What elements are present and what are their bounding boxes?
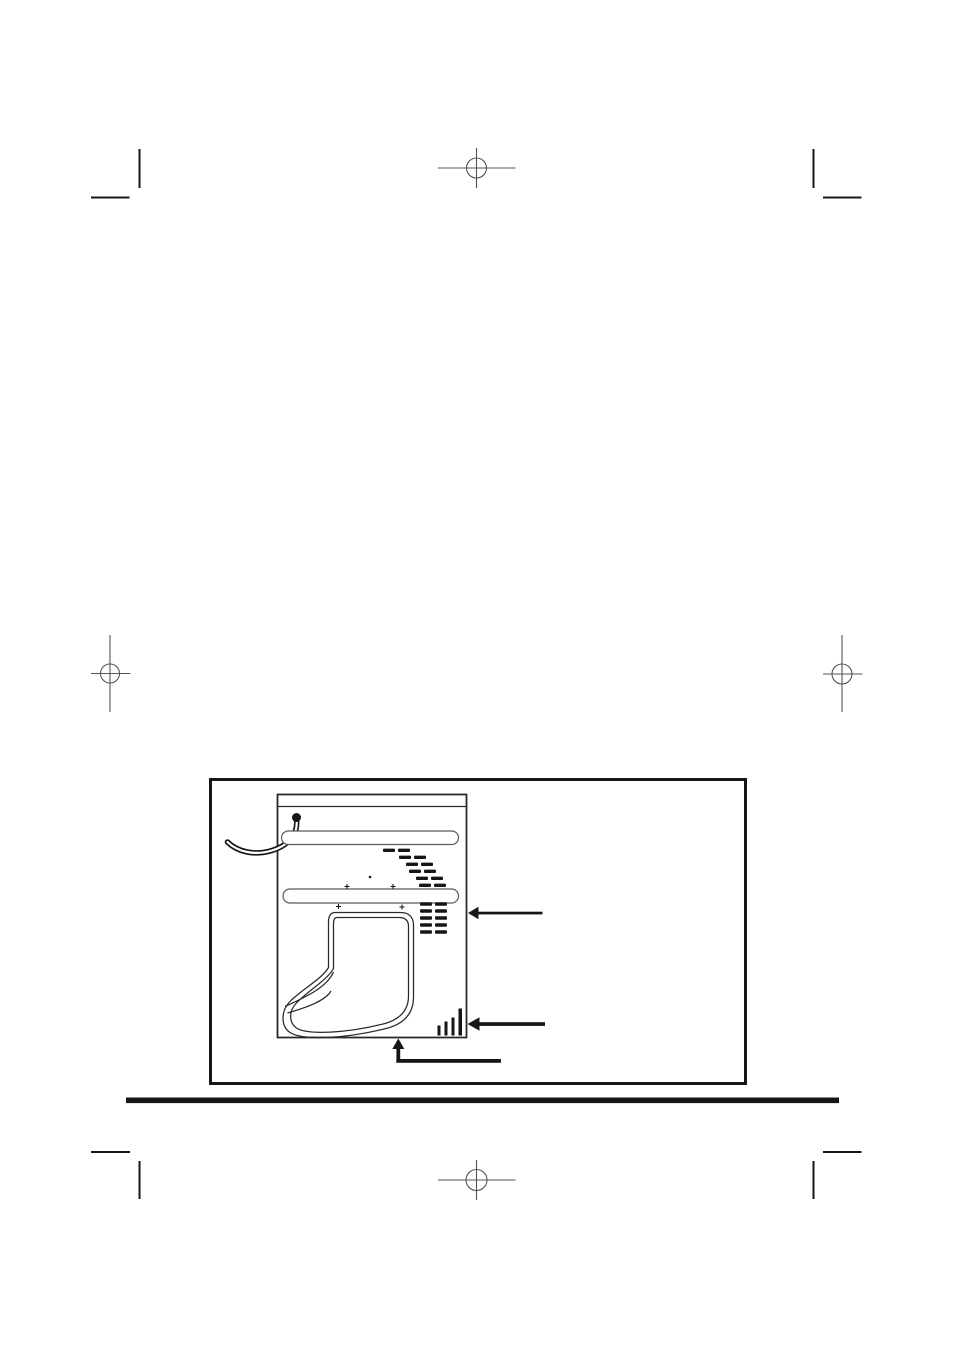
registration-target-top-center — [438, 148, 516, 188]
louvre-dash — [399, 856, 411, 859]
louvre-dash — [434, 884, 446, 887]
arrow-shaft-horizontal — [396, 1059, 501, 1063]
louvre-dash — [398, 849, 410, 852]
arrow-shaft — [478, 1022, 545, 1026]
louvre-dash — [420, 930, 432, 933]
louvre-dash — [383, 849, 395, 852]
louvre-dash — [414, 856, 426, 859]
louvre-dash — [435, 902, 447, 905]
rib-bar — [438, 1026, 441, 1036]
registration-target-left-middle — [91, 635, 131, 712]
louvre-dash — [406, 863, 418, 866]
louvre-dash — [420, 923, 432, 926]
louvre-dash — [409, 870, 421, 873]
lower-rear-brace — [283, 889, 459, 903]
rib-bar — [459, 1009, 463, 1036]
footer-divider-rule — [126, 1098, 839, 1104]
louvre-dash — [421, 863, 433, 866]
scanned-manual-page — [0, 0, 954, 1350]
louvre-dash — [420, 902, 432, 905]
louvre-dash — [416, 877, 428, 880]
registration-target-right-middle — [823, 635, 863, 712]
louvre-dash — [431, 877, 443, 880]
screw-dot — [369, 876, 372, 879]
louvre-dash — [435, 909, 447, 912]
page-canvas — [0, 0, 954, 1350]
louvre-dash — [420, 916, 432, 919]
louvre-dash — [424, 870, 436, 873]
rib-bar — [452, 1018, 455, 1036]
louvre-dash — [420, 909, 432, 912]
power-cord-plug-icon — [292, 813, 301, 822]
rib-bar — [445, 1022, 448, 1036]
louvre-dash — [435, 916, 447, 919]
registration-target-bottom-center — [438, 1160, 516, 1200]
louvre-dash — [419, 884, 431, 887]
upper-rear-brace — [282, 831, 459, 845]
arrow-shaft — [477, 912, 543, 915]
louvre-dash — [435, 923, 447, 926]
louvre-dash — [435, 930, 447, 933]
